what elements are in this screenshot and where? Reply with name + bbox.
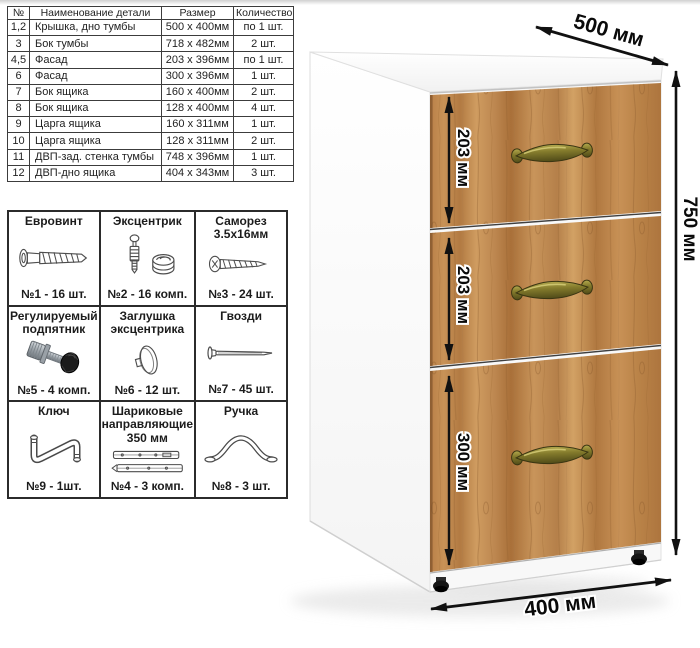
dim-label-drawer-2: 203 мм (454, 266, 473, 324)
dim-label-height: 750 мм (679, 196, 700, 261)
dim-label-depth: 500 мм (571, 10, 646, 52)
cabinet-illustration: 500 мм 750 мм 400 мм 203 мм 203 мм 300 м… (0, 0, 700, 648)
dim-label-drawer-3: 300 мм (454, 433, 473, 491)
cabinet-side-panel (310, 52, 430, 592)
dim-label-drawer-1: 203 мм (454, 129, 473, 187)
